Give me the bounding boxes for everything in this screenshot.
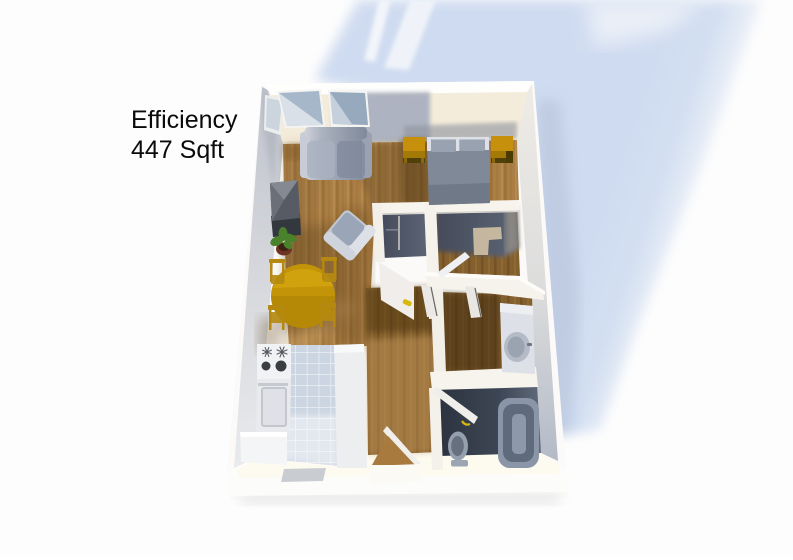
svg-text:447 Sqft: 447 Sqft <box>131 136 224 164</box>
svg-text:Efficiency: Efficiency <box>131 106 238 134</box>
